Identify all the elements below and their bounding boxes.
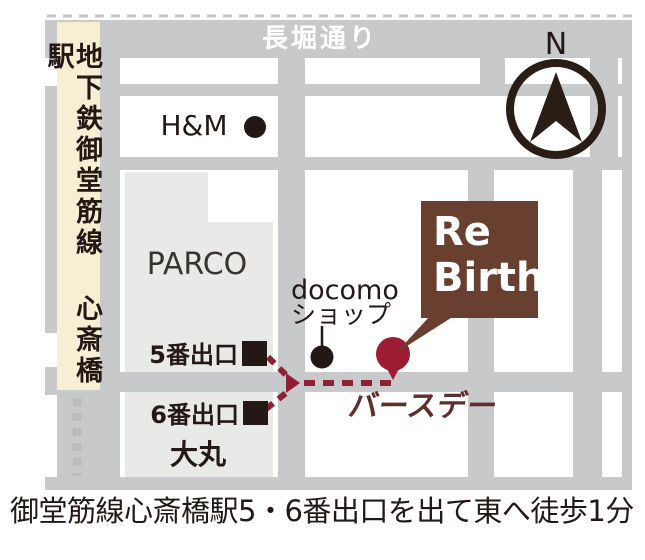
- road-horizontal-b: [120, 157, 632, 170]
- docomo-label-line2: ショップ: [291, 302, 401, 326]
- compass-north-label: N: [539, 29, 573, 59]
- road-horizontal-a: [120, 84, 632, 96]
- road-vertical-3-lower: [573, 170, 602, 477]
- exit5-label: 5番出口: [136, 343, 238, 369]
- subway-line-label: 地下鉄御堂筋線 心斎橋駅: [58, 42, 100, 394]
- hm-dot: [244, 116, 266, 138]
- access-map: 長堀通り 地下鉄御堂筋線 心斎橋駅 H&M PARCO 5番出口 6番出口 大丸…: [0, 0, 645, 560]
- compass-needle: [530, 72, 582, 142]
- road-vertical-2-stub: [480, 58, 505, 84]
- parco-block-notch: [208, 172, 273, 222]
- side-street-gap: [45, 333, 57, 367]
- access-caption: 御堂筋線心斎橋駅5・6番出口を出て東へ徒歩1分: [10, 496, 642, 536]
- compass-icon: [510, 63, 602, 155]
- road-bottom: [45, 477, 632, 490]
- exit5-square: [242, 341, 267, 366]
- rebirth-store-box: Re Birth: [421, 201, 538, 318]
- docomo-dot: [311, 346, 334, 369]
- rebirth-pointer: [396, 316, 454, 353]
- street-label-nagahori: 長堀通り: [235, 26, 405, 56]
- rebirth-box-line2: Birth: [433, 255, 538, 301]
- store-pin-dot: [376, 337, 410, 371]
- hm-label: H&M: [150, 111, 238, 143]
- road-vertical-3-upper: [590, 58, 618, 157]
- road-vertical-1: [278, 58, 305, 477]
- exit6-label: 6番出口: [137, 403, 239, 429]
- exit6-square: [243, 401, 268, 425]
- daimaru-label: 大丸: [158, 440, 238, 472]
- side-street-gap: [45, 395, 57, 477]
- rebirth-box-line1: Re: [433, 209, 538, 255]
- parco-label: PARCO: [138, 249, 256, 283]
- road-east-edge: [622, 58, 632, 490]
- store-name-japanese: バースデー: [327, 391, 517, 427]
